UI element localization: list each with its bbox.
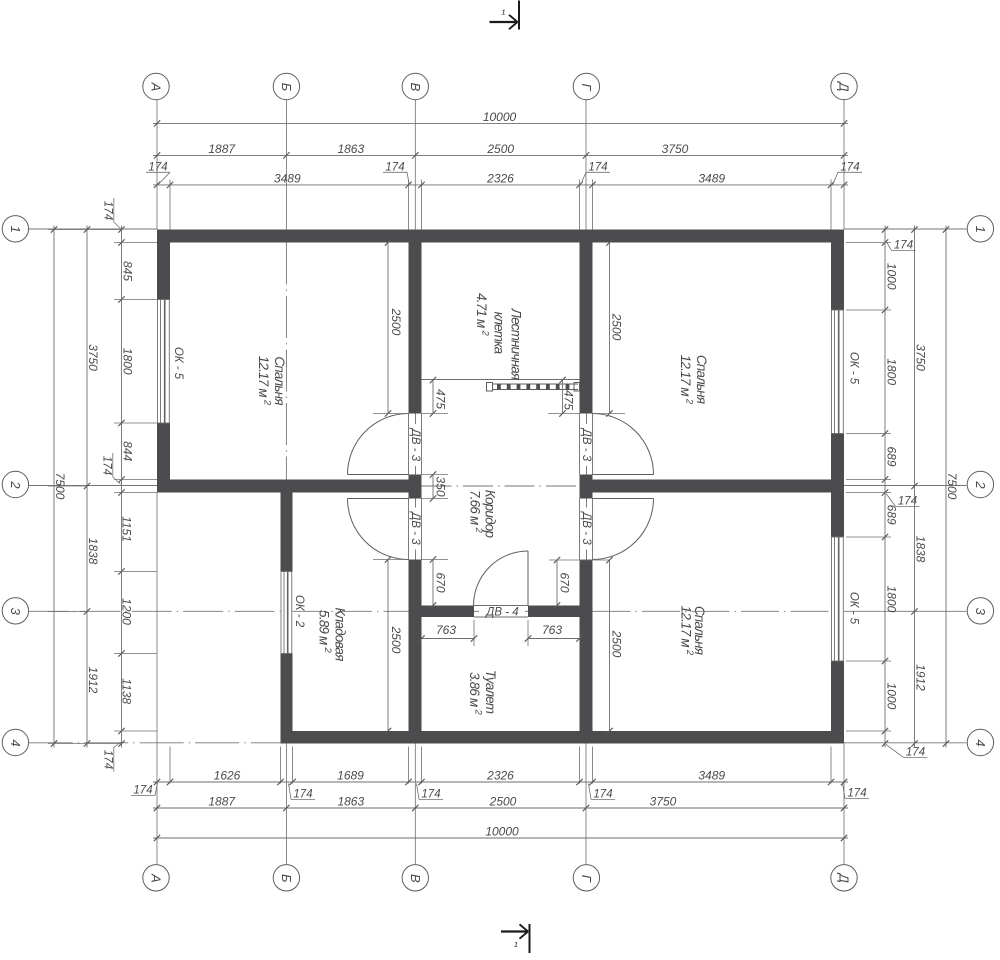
svg-text:2326: 2326 <box>486 171 514 185</box>
svg-text:174: 174 <box>293 789 312 801</box>
svg-text:2: 2 <box>8 480 23 489</box>
svg-text:3: 3 <box>8 608 23 616</box>
svg-text:1: 1 <box>501 8 505 17</box>
svg-text:475: 475 <box>561 390 575 410</box>
svg-text:174: 174 <box>421 789 440 801</box>
svg-text:174: 174 <box>593 789 612 801</box>
svg-text:1689: 1689 <box>337 769 364 783</box>
svg-text:1151: 1151 <box>120 516 134 542</box>
svg-text:2500: 2500 <box>609 630 623 658</box>
svg-text:Г: Г <box>579 875 594 883</box>
svg-text:3750: 3750 <box>914 344 928 371</box>
svg-text:174: 174 <box>148 161 167 173</box>
svg-text:12.17 м 2: 12.17 м 2 <box>678 606 695 656</box>
svg-text:3: 3 <box>973 608 988 616</box>
svg-text:1: 1 <box>8 226 23 233</box>
svg-text:689: 689 <box>884 505 898 525</box>
svg-text:7.66 м 2: 7.66 м 2 <box>467 490 484 533</box>
svg-text:3489: 3489 <box>698 171 725 185</box>
svg-text:1838: 1838 <box>914 536 928 563</box>
svg-text:763: 763 <box>436 623 456 637</box>
svg-text:12.17 м 2: 12.17 м 2 <box>256 356 273 406</box>
svg-text:670: 670 <box>557 572 571 592</box>
svg-text:Д: Д <box>837 872 852 883</box>
svg-text:3489: 3489 <box>274 171 301 185</box>
svg-text:1863: 1863 <box>337 142 364 156</box>
svg-text:174: 174 <box>385 161 404 173</box>
svg-text:2: 2 <box>973 480 988 489</box>
svg-text:А: А <box>149 873 164 883</box>
svg-text:1887: 1887 <box>208 142 236 156</box>
svg-text:844: 844 <box>121 441 135 461</box>
svg-text:1: 1 <box>514 940 518 949</box>
svg-text:174: 174 <box>102 201 114 220</box>
svg-text:ОК - 5: ОК - 5 <box>848 592 860 625</box>
svg-text:3750: 3750 <box>662 142 689 156</box>
svg-text:1000: 1000 <box>884 683 898 710</box>
svg-text:Д: Д <box>837 80 852 91</box>
svg-text:ОК - 5: ОК - 5 <box>172 347 184 380</box>
svg-text:2500: 2500 <box>389 308 403 336</box>
svg-text:174: 174 <box>906 747 925 759</box>
svg-text:ДВ - 3: ДВ - 3 <box>409 427 421 462</box>
svg-text:В: В <box>408 874 423 883</box>
svg-text:350: 350 <box>434 476 448 496</box>
svg-text:2500: 2500 <box>486 142 514 156</box>
svg-text:7500: 7500 <box>945 473 959 500</box>
svg-text:2500: 2500 <box>389 626 403 654</box>
svg-text:А: А <box>149 82 164 92</box>
svg-text:Б: Б <box>279 83 294 92</box>
svg-text:ДВ - 4: ДВ - 4 <box>484 607 518 619</box>
svg-text:763: 763 <box>542 623 562 637</box>
svg-text:174: 174 <box>840 161 859 173</box>
svg-text:1838: 1838 <box>86 538 100 565</box>
svg-text:670: 670 <box>434 572 448 592</box>
svg-text:1626: 1626 <box>214 769 241 783</box>
svg-text:4: 4 <box>973 739 988 746</box>
svg-text:4: 4 <box>8 739 23 746</box>
svg-text:Б: Б <box>279 874 294 883</box>
svg-text:1200: 1200 <box>120 598 134 625</box>
svg-text:Туалет: Туалет <box>483 670 498 714</box>
svg-text:Спальня: Спальня <box>694 355 709 404</box>
svg-text:В: В <box>408 83 423 92</box>
svg-text:174: 174 <box>894 240 913 252</box>
svg-text:1000: 1000 <box>884 263 898 290</box>
svg-text:2326: 2326 <box>486 769 514 783</box>
svg-text:3750: 3750 <box>86 344 100 371</box>
svg-text:1887: 1887 <box>208 795 236 809</box>
svg-text:12.17 м 2: 12.17 м 2 <box>678 355 695 405</box>
svg-text:1800: 1800 <box>121 348 135 375</box>
svg-text:ДВ - 3: ДВ - 3 <box>580 510 592 545</box>
svg-text:2500: 2500 <box>609 313 623 341</box>
svg-text:1800: 1800 <box>884 586 898 613</box>
svg-text:Г: Г <box>579 83 594 91</box>
svg-text:Лестничная: Лестничная <box>509 308 524 380</box>
svg-text:3.86 м 2: 3.86 м 2 <box>467 672 484 715</box>
svg-text:10000: 10000 <box>485 825 519 839</box>
svg-text:174: 174 <box>102 750 114 769</box>
svg-text:174: 174 <box>588 161 607 173</box>
svg-text:1863: 1863 <box>337 795 364 809</box>
svg-text:3489: 3489 <box>698 769 725 783</box>
svg-text:Кладовая: Кладовая <box>333 607 348 661</box>
svg-text:174: 174 <box>101 456 113 475</box>
svg-text:3750: 3750 <box>650 795 677 809</box>
svg-text:ДВ - 3: ДВ - 3 <box>580 427 592 462</box>
svg-text:845: 845 <box>121 261 135 281</box>
svg-text:1: 1 <box>973 226 988 233</box>
svg-text:475: 475 <box>434 389 448 409</box>
svg-text:Спальня: Спальня <box>692 606 707 655</box>
svg-text:1912: 1912 <box>914 664 928 691</box>
svg-text:174: 174 <box>133 785 152 797</box>
svg-text:2500: 2500 <box>489 795 517 809</box>
svg-text:Спальня: Спальня <box>272 356 287 405</box>
svg-text:1800: 1800 <box>884 358 898 385</box>
svg-text:5.89 м 2: 5.89 м 2 <box>317 610 334 653</box>
svg-text:10000: 10000 <box>483 110 517 124</box>
svg-text:1138: 1138 <box>120 678 134 704</box>
svg-text:клетка: клетка <box>492 312 507 355</box>
svg-text:1912: 1912 <box>86 667 100 694</box>
svg-text:174: 174 <box>847 788 866 800</box>
svg-text:ОК - 5: ОК - 5 <box>848 352 860 385</box>
svg-text:689: 689 <box>884 446 898 466</box>
svg-text:4.71 м 2: 4.71 м 2 <box>474 293 491 336</box>
svg-text:ДВ - 3: ДВ - 3 <box>409 510 421 545</box>
